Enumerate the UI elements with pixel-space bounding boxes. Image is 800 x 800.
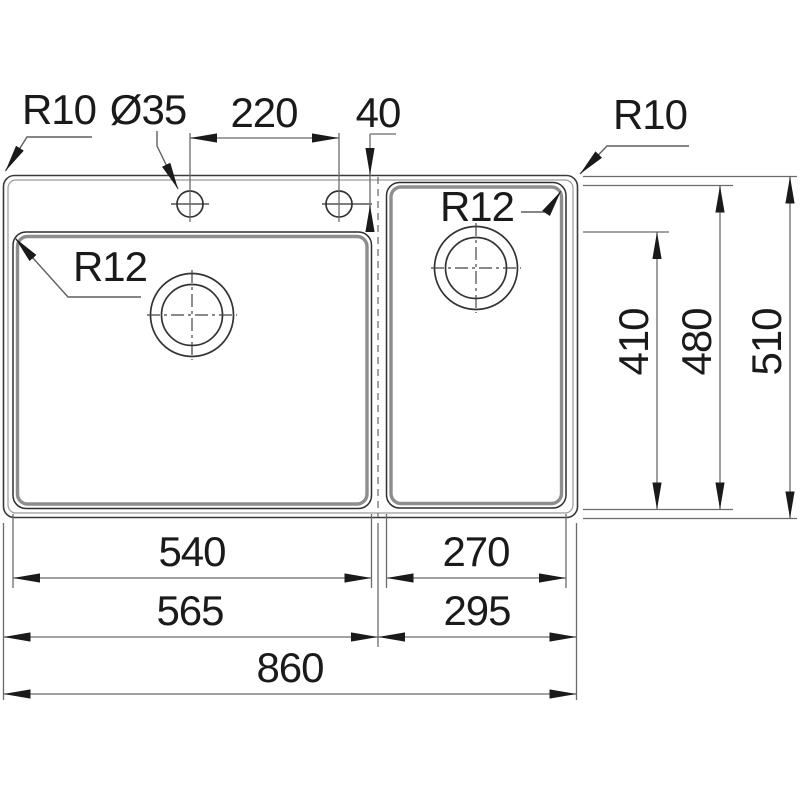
r12-main-label: R12	[73, 243, 147, 290]
drawing-svg: R10 Ø35 220 40 R10 R12 R12 410	[0, 0, 800, 800]
dimension-main-bowl-depth: 410	[610, 232, 657, 510]
r10-left-label: R10	[22, 86, 96, 133]
sink-technical-drawing: R10 Ø35 220 40 R10 R12 R12 410	[0, 0, 800, 800]
dimension-second-bowl-depth: 480	[673, 186, 720, 510]
dim-295-label: 295	[443, 587, 510, 634]
r10-left-leader	[6, 137, 93, 171]
dimension-overall-width: 860	[4, 644, 577, 694]
dimension-second-bowl-width: 270	[387, 528, 567, 578]
dim-565-label: 565	[156, 587, 223, 634]
dimension-faucet-hole-spacing: 220	[190, 89, 339, 138]
r10-right-label: R10	[613, 91, 687, 138]
dimension-main-bowl-width: 540	[13, 528, 372, 578]
dim-220-label: 220	[230, 89, 297, 136]
label-faucet-hole-diameter: Ø35	[110, 86, 186, 189]
dim-480-label: 480	[673, 308, 720, 375]
dim-270-label: 270	[442, 528, 509, 575]
dia35-label: Ø35	[110, 86, 186, 133]
label-corner-radius-left: R10	[6, 86, 97, 171]
dim-410-label: 410	[610, 308, 657, 375]
r10-right-leader	[580, 146, 689, 174]
r12-second-label: R12	[440, 183, 514, 230]
label-corner-radius-right: R10	[580, 91, 689, 174]
dimension-overall-depth: 510	[743, 177, 790, 519]
dimension-second-section-width: 295	[378, 587, 577, 637]
dim-540-label: 540	[158, 528, 225, 575]
dim-40-label: 40	[356, 89, 401, 136]
dim-860-label: 860	[256, 644, 323, 691]
dimension-main-section-width: 565	[4, 587, 379, 637]
dim-510-label: 510	[743, 308, 790, 375]
